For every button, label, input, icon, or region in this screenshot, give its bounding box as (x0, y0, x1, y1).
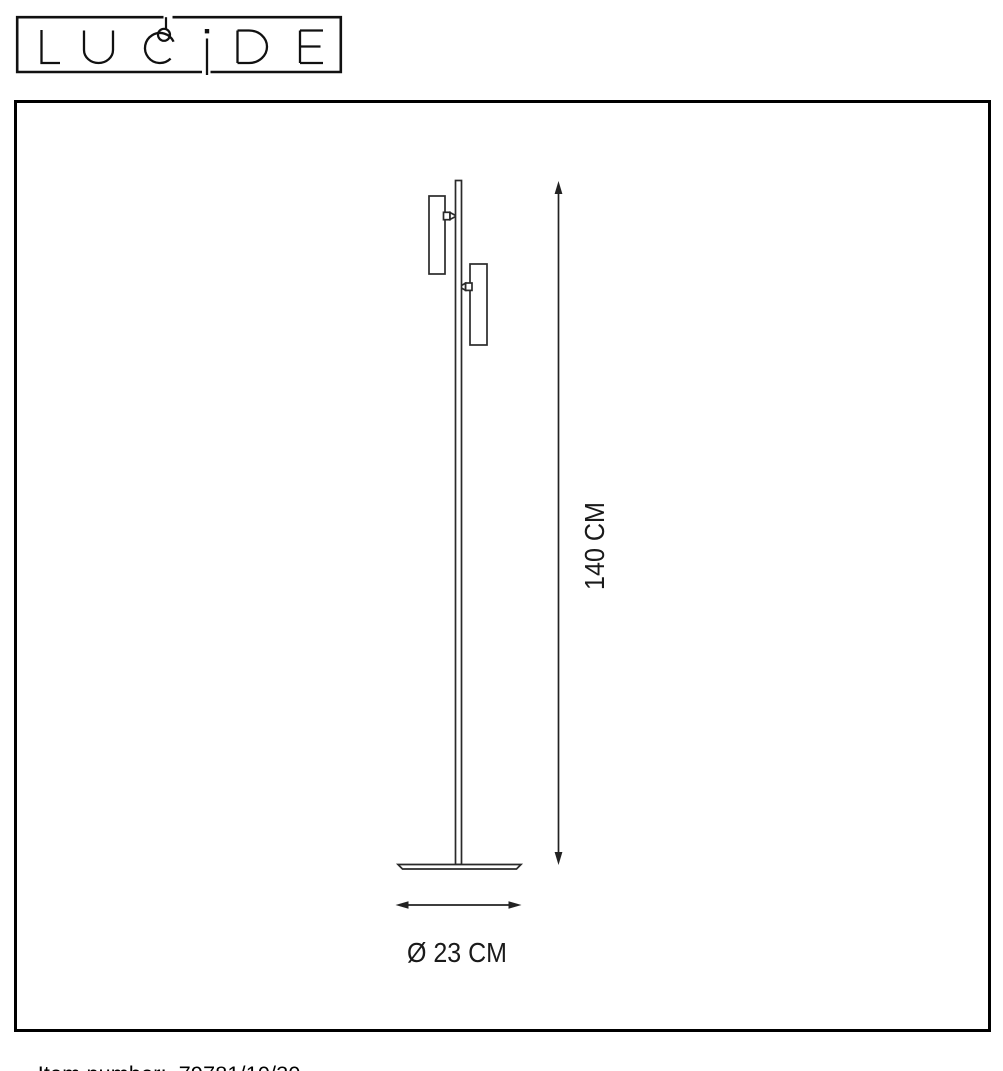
logo-letter-i-dot (205, 29, 209, 33)
diagram-border (16, 102, 990, 1031)
logo-frame (17, 17, 341, 72)
lamp-upper-joint (444, 212, 457, 219)
logo-letters (42, 29, 324, 75)
arrow-down-icon (555, 852, 563, 865)
lamp-pole (456, 181, 462, 865)
logo-letter-d (238, 31, 268, 64)
product-dimension-sheet: 140 CM Ø 23 CM Item number:79781/10/30 (0, 0, 1003, 1071)
dimension-diagram: 140 CM Ø 23 CM (14, 100, 991, 1032)
logo-letter-u (84, 31, 113, 64)
footer: Item number:79781/10/30 (13, 1036, 301, 1071)
lamp-upper-head (429, 196, 445, 274)
diameter-dimension-label: Ø 23 CM (407, 937, 507, 968)
diameter-dimension: Ø 23 CM (396, 901, 522, 968)
logo-letter-l (42, 30, 61, 63)
lamp-base-plate (398, 865, 521, 870)
logo-letter-e (300, 31, 323, 64)
arrow-left-icon (396, 901, 409, 909)
floor-lamp-drawing (398, 181, 521, 870)
lamp-lower-head (470, 264, 487, 345)
height-dimension-label: 140 CM (579, 502, 610, 590)
pendant-lamp-icon (158, 17, 170, 41)
arrow-up-icon (555, 181, 563, 194)
arrow-right-icon (509, 901, 522, 909)
item-number-value: 79781/10/30 (179, 1062, 301, 1071)
lucide-logo (14, 14, 344, 76)
height-dimension: 140 CM (555, 181, 610, 865)
item-number-label: Item number: (38, 1062, 167, 1071)
